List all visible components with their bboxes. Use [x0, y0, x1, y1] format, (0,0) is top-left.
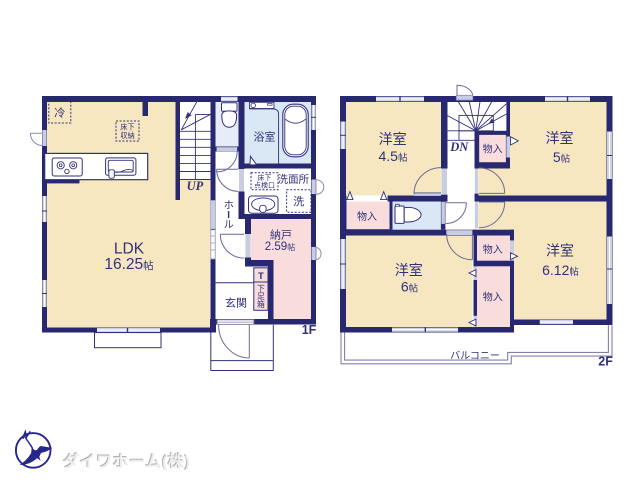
svg-text:洗面所: 洗面所 [278, 174, 310, 186]
svg-text:UP: UP [187, 179, 204, 193]
svg-text:浴室: 浴室 [254, 130, 276, 144]
svg-text:LDK: LDK [114, 241, 145, 258]
svg-text:洋室: 洋室 [546, 242, 574, 258]
svg-text:洗: 洗 [293, 195, 304, 208]
svg-text:物入: 物入 [483, 291, 503, 304]
svg-text:点検口: 点検口 [254, 181, 275, 190]
svg-text:2F: 2F [598, 355, 613, 369]
svg-text:箱: 箱 [257, 299, 265, 309]
svg-text:物入: 物入 [357, 210, 377, 223]
svg-text:収納: 収納 [120, 131, 134, 140]
svg-text:洋室: 洋室 [546, 130, 574, 146]
svg-text:ダイワホーム(株): ダイワホーム(株) [63, 452, 191, 471]
svg-text:ホ: ホ [224, 200, 234, 212]
svg-text:バルコニー: バルコニー [450, 350, 500, 362]
svg-text:1F: 1F [302, 323, 317, 337]
svg-text:物入: 物入 [483, 142, 503, 155]
svg-text:冷: 冷 [54, 107, 65, 120]
svg-text:洋室: 洋室 [379, 131, 407, 147]
svg-text:DN: DN [449, 140, 469, 154]
svg-text:ル: ル [224, 220, 234, 231]
svg-text:洋室: 洋室 [395, 262, 423, 278]
svg-text:物入: 物入 [483, 243, 503, 256]
svg-text:2.59帖: 2.59帖 [265, 241, 295, 253]
svg-text:玄関: 玄関 [225, 296, 247, 310]
svg-text:床下: 床下 [258, 173, 272, 182]
svg-text:納戸: 納戸 [270, 229, 292, 242]
svg-text:T: T [258, 271, 264, 282]
